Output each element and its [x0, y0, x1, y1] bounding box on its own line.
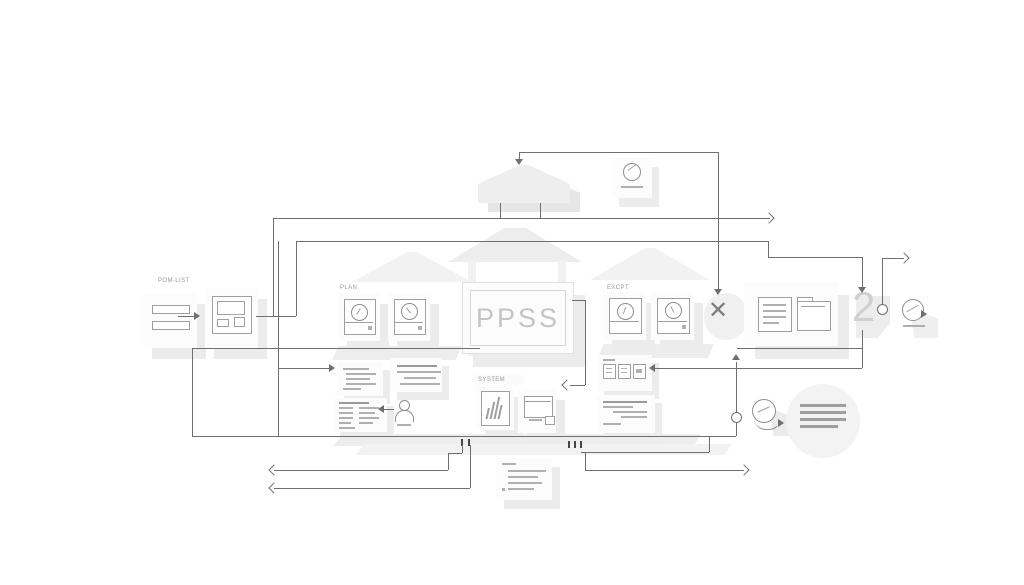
text-card-c — [597, 395, 655, 433]
text-line — [343, 388, 361, 390]
connector-line — [718, 152, 719, 290]
connector-line — [862, 257, 863, 288]
table-cell — [339, 422, 351, 424]
text-line — [346, 378, 370, 380]
connector-line — [736, 362, 737, 436]
page-icon — [603, 364, 616, 379]
text-line — [346, 383, 376, 385]
text-line — [613, 411, 647, 413]
text-line — [508, 482, 542, 484]
connector-line — [585, 470, 744, 471]
text-line — [400, 383, 440, 385]
connector-line — [519, 152, 718, 153]
window-card — [518, 389, 556, 433]
group-label-plan: PLAN — [340, 285, 357, 291]
note-circle — [786, 384, 860, 458]
connector-line — [585, 452, 586, 470]
terminal-icon-key — [217, 319, 229, 327]
house-icon — [478, 165, 570, 203]
chart-card — [476, 386, 514, 430]
arrowhead — [329, 364, 335, 372]
roof-shape-right — [590, 248, 710, 280]
note-line — [800, 404, 846, 407]
arrowhead — [858, 287, 866, 293]
table-cell — [359, 407, 379, 409]
connector-line — [462, 445, 463, 453]
gauge-digit — [682, 325, 686, 329]
badge-arrow — [921, 310, 927, 318]
connector-line — [581, 452, 709, 453]
circle-node — [877, 304, 888, 315]
window-icon-panel — [545, 416, 555, 425]
text-line — [621, 416, 647, 418]
terminal-icon-key — [234, 317, 245, 327]
arrowhead — [378, 405, 384, 413]
connector-line — [178, 316, 194, 317]
text-card-b — [390, 358, 442, 392]
house-leg-left — [500, 203, 501, 218]
text-line — [397, 371, 441, 373]
list-icon-row — [152, 321, 190, 330]
window-icon — [524, 396, 553, 418]
text-line — [508, 488, 534, 490]
gauge-card-1 — [338, 293, 380, 341]
table-cell — [339, 412, 353, 414]
arrowhead-open — [268, 482, 279, 493]
ppss-sign-title: PPSS — [463, 283, 573, 353]
table-cell — [359, 417, 379, 419]
connector-line — [655, 368, 862, 369]
gauge-digit — [418, 326, 422, 330]
caption-line — [231, 314, 241, 315]
connector-line — [768, 241, 769, 257]
caption-line — [397, 424, 411, 426]
connector-line — [448, 453, 462, 454]
connector-line — [882, 258, 883, 304]
text-line — [508, 470, 546, 472]
arrowhead — [714, 289, 722, 295]
text-line — [603, 406, 633, 408]
connector-line — [296, 241, 768, 242]
table-cell — [339, 427, 355, 429]
arrowhead — [194, 312, 200, 320]
table-header — [339, 402, 369, 404]
gauge-baseline — [658, 321, 687, 322]
note-line — [800, 411, 846, 414]
text-line — [404, 377, 436, 379]
connector-line — [470, 445, 471, 488]
connector-line — [384, 409, 394, 410]
arrowhead-open — [561, 379, 572, 390]
connector-line — [296, 241, 297, 316]
note-line — [800, 418, 846, 421]
text-line — [508, 476, 538, 478]
platform-bottom-shadow — [356, 444, 732, 455]
connector-line — [192, 348, 480, 349]
note-line — [800, 425, 838, 428]
connector-line — [709, 436, 710, 452]
reject-mark: ✕ — [708, 299, 728, 323]
table-card — [333, 398, 387, 432]
connector-line — [862, 330, 863, 368]
window-icon-stand — [529, 419, 542, 421]
table-cell — [339, 417, 353, 419]
gauge-card-2 — [388, 293, 430, 341]
page-icon — [618, 364, 631, 379]
circle-node — [731, 412, 742, 423]
roof-shape-left — [352, 252, 472, 282]
connector-line — [585, 300, 586, 385]
gauge-baseline — [345, 322, 373, 323]
arrowhead — [515, 159, 523, 165]
connector-line — [737, 348, 862, 349]
arrowhead — [649, 364, 655, 372]
caption-line — [903, 325, 925, 327]
connector-line — [274, 488, 470, 489]
text-line — [343, 368, 369, 370]
connector-line — [572, 300, 585, 301]
roof-shape-center — [448, 228, 582, 262]
group-label-excpt: EXCPT — [607, 285, 629, 291]
table-cell — [359, 412, 375, 414]
window-icon-titlebar — [525, 401, 551, 402]
gauge-card-4 — [651, 292, 694, 340]
pages-card — [597, 355, 652, 391]
connector-line — [256, 316, 296, 317]
diagram-canvas: POM-LIST PLAN — [0, 0, 1024, 585]
tick-mark — [580, 441, 582, 448]
caption-line — [621, 186, 643, 188]
document-icon — [758, 297, 792, 332]
gauge-baseline — [395, 322, 423, 323]
house-leg-right — [540, 203, 541, 218]
caption-line — [603, 359, 615, 361]
text-line — [603, 423, 621, 425]
page-icon — [633, 364, 646, 379]
arrowhead-open — [738, 464, 749, 475]
gauge-icon — [617, 303, 634, 320]
connector-line — [278, 368, 331, 369]
text-card-a — [337, 362, 383, 396]
person-icon-body — [395, 410, 414, 422]
text-line — [346, 373, 376, 375]
connector-line — [768, 257, 862, 258]
ppss-sign: PPSS — [462, 282, 574, 354]
caption-line — [502, 463, 516, 465]
connector-line — [274, 470, 448, 471]
gauge-card-3 — [603, 292, 646, 340]
text-line — [397, 365, 437, 367]
terminal-icon-screen — [217, 301, 245, 315]
refresh-arrowhead — [778, 419, 784, 427]
text-card-d — [496, 458, 552, 500]
table-cell — [359, 422, 373, 424]
connector-line — [192, 348, 193, 436]
connector-line — [278, 241, 279, 436]
connector-line — [273, 218, 274, 316]
tick-mark — [574, 441, 576, 448]
tick-mark — [568, 441, 570, 448]
group-label-system: SYSTEM — [478, 377, 505, 383]
text-line — [603, 401, 647, 403]
arrowhead-open — [763, 212, 774, 223]
gauge-icon — [351, 304, 368, 321]
arrowhead-open — [898, 252, 909, 263]
connector-line — [273, 218, 770, 219]
arrowhead — [732, 354, 740, 360]
list-card — [143, 293, 197, 348]
arrowhead-open — [268, 464, 279, 475]
list-icon-row — [152, 305, 190, 314]
table-cell — [339, 407, 353, 409]
gauge-digit — [368, 326, 372, 330]
group-label-pom: POM-LIST — [158, 278, 190, 284]
connector-line — [192, 436, 736, 437]
notification-card — [612, 158, 652, 198]
connector-line — [448, 453, 449, 470]
list-bullet — [502, 488, 505, 491]
terminal-card — [205, 288, 258, 348]
gauge-baseline — [610, 321, 639, 322]
folder-icon-fold — [801, 306, 825, 307]
documents-card — [744, 282, 838, 346]
